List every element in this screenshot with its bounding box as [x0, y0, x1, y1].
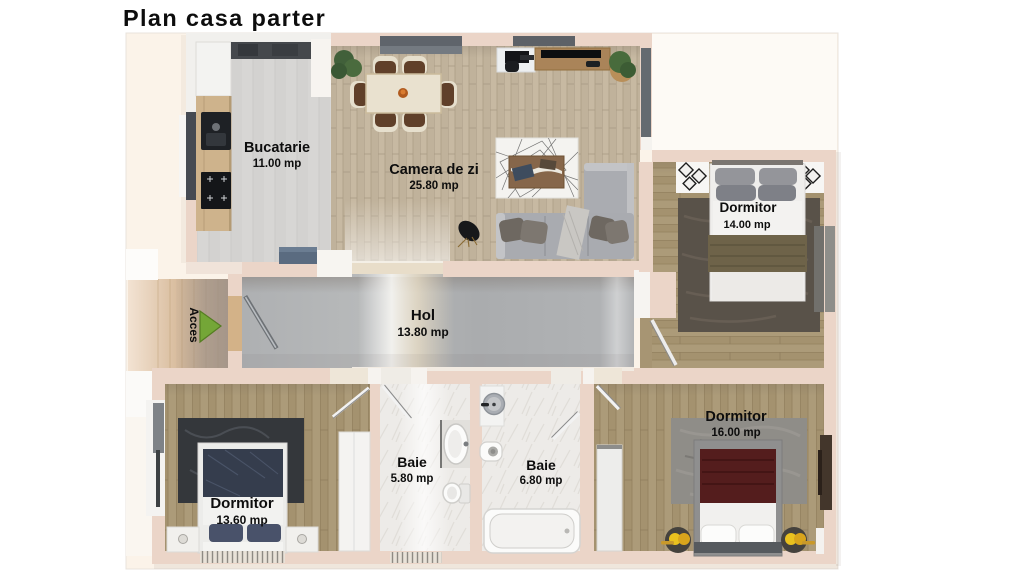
svg-text:5.80 mp: 5.80 mp: [391, 473, 434, 485]
svg-text:14.00 mp: 14.00 mp: [723, 219, 770, 231]
svg-text:Camera de zi: Camera de zi: [389, 162, 478, 178]
svg-text:Dormitor: Dormitor: [705, 409, 767, 425]
svg-text:6.80 mp: 6.80 mp: [520, 475, 563, 487]
svg-text:13.80 mp: 13.80 mp: [397, 325, 448, 339]
svg-text:Dormitor: Dormitor: [720, 200, 778, 215]
svg-text:Dormitor: Dormitor: [210, 495, 273, 512]
svg-text:25.80 mp: 25.80 mp: [409, 180, 458, 192]
svg-text:Baie: Baie: [397, 454, 427, 470]
svg-text:Acces: Acces: [187, 307, 201, 343]
svg-text:13.60 mp: 13.60 mp: [216, 513, 267, 527]
svg-text:Hol: Hol: [411, 307, 435, 324]
svg-text:11.00 mp: 11.00 mp: [253, 158, 302, 170]
svg-text:16.00 mp: 16.00 mp: [711, 427, 760, 439]
svg-text:Plan casa parter: Plan casa parter: [123, 5, 326, 31]
svg-text:Baie: Baie: [526, 457, 556, 473]
svg-text:Bucatarie: Bucatarie: [244, 140, 310, 156]
